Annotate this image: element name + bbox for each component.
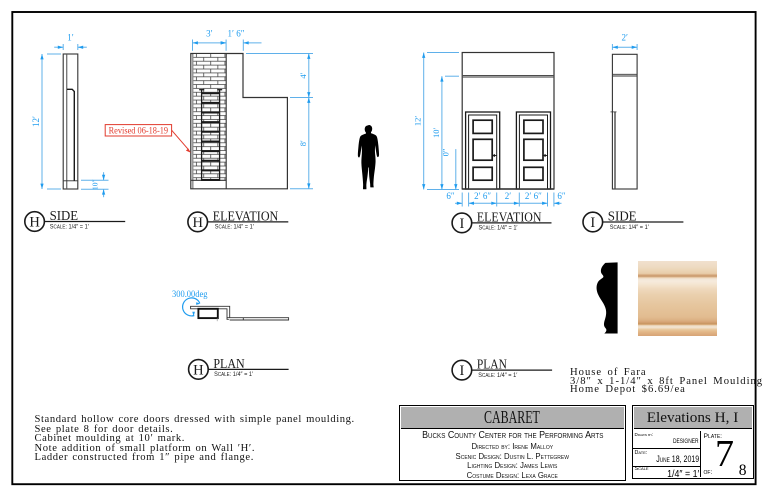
svg-text:Revised 06-18-19: Revised 06-18-19 bbox=[109, 126, 169, 137]
svg-text:SCALE: 1/4″ = 1′: SCALE: 1/4″ = 1′ bbox=[479, 225, 519, 232]
svg-text:6″: 6″ bbox=[557, 191, 566, 201]
svg-text:SCALE: 1/4″ = 1′: SCALE: 1/4″ = 1′ bbox=[610, 224, 650, 231]
svg-text:2′: 2′ bbox=[505, 191, 512, 201]
svg-text:PLAN: PLAN bbox=[477, 357, 507, 372]
svg-text:2′ 6″: 2′ 6″ bbox=[525, 191, 542, 201]
svg-text:H: H bbox=[193, 362, 204, 378]
svg-text:H: H bbox=[29, 215, 40, 231]
svg-text:2′: 2′ bbox=[622, 33, 629, 43]
svg-text:I: I bbox=[590, 215, 595, 231]
svg-text:SCALE: 1/4″ = 1′: SCALE: 1/4″ = 1′ bbox=[478, 372, 518, 379]
svg-text:H: H bbox=[192, 215, 203, 231]
svg-text:3′: 3′ bbox=[206, 29, 213, 39]
svg-text:2′ 6″: 2′ 6″ bbox=[474, 191, 491, 201]
svg-text:8′: 8′ bbox=[298, 140, 308, 146]
svg-text:1′ 6″: 1′ 6″ bbox=[228, 29, 245, 39]
svg-text:10′: 10′ bbox=[431, 128, 441, 139]
svg-text:SIDE: SIDE bbox=[50, 208, 79, 223]
svg-text:SCALE: 1/4″ = 1′: SCALE: 1/4″ = 1′ bbox=[214, 371, 254, 378]
svg-text:12′: 12′ bbox=[413, 116, 423, 127]
svg-text:4′: 4′ bbox=[298, 72, 308, 78]
svg-text:300.00deg: 300.00deg bbox=[172, 290, 208, 300]
svg-text:SIDE: SIDE bbox=[608, 209, 637, 224]
svg-text:ELEVATION: ELEVATION bbox=[477, 209, 542, 224]
svg-text:I: I bbox=[459, 216, 464, 232]
svg-text:12′: 12′ bbox=[31, 116, 41, 127]
svg-text:I: I bbox=[459, 363, 464, 379]
svg-text:1′: 1′ bbox=[67, 33, 74, 43]
svg-text:SCALE: 1/4″ = 1′: SCALE: 1/4″ = 1′ bbox=[50, 223, 90, 230]
svg-text:ELEVATION: ELEVATION bbox=[213, 208, 279, 223]
svg-text:SCALE: 1/4″ = 1′: SCALE: 1/4″ = 1′ bbox=[215, 224, 255, 231]
svg-text:PLAN: PLAN bbox=[213, 356, 245, 371]
svg-text:10″: 10″ bbox=[91, 179, 100, 190]
svg-text:6″: 6″ bbox=[446, 191, 455, 201]
svg-text:0″: 0″ bbox=[441, 148, 451, 156]
